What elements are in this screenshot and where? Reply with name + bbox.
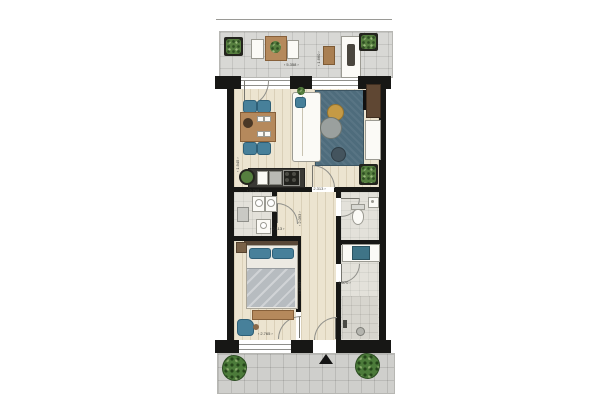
- sofa-pillow: [295, 97, 306, 108]
- wall-toilet-left-bottom: [336, 216, 341, 240]
- plant-icon: [297, 87, 305, 95]
- bed-pillow: [249, 248, 271, 259]
- burner: [285, 178, 289, 182]
- tv-screen: [363, 90, 366, 110]
- balcony-chair-left: [251, 39, 264, 59]
- bottom-wall-left: [215, 340, 239, 353]
- basin-drain: [371, 200, 374, 203]
- tv-cabinet: [366, 84, 381, 118]
- dimension-bathroom-width: 1.070: [336, 281, 351, 285]
- wall-bath-left-top: [336, 245, 341, 264]
- dimension-storage-width: 2.113: [270, 227, 284, 231]
- terrace-plant-left: [222, 355, 247, 381]
- cutting-board: [257, 171, 268, 185]
- kitchen-plant: [239, 169, 255, 185]
- burner: [292, 178, 296, 182]
- burner: [285, 172, 289, 176]
- plant-icon: [361, 35, 376, 49]
- dining-chair: [243, 142, 257, 155]
- dimension-storage-depth: 2.093: [298, 211, 302, 226]
- coffee-table-gray: [320, 117, 342, 139]
- plant-icon: [226, 39, 241, 54]
- shower-head-icon: [343, 320, 347, 328]
- burner: [292, 172, 296, 176]
- shower-drain: [356, 327, 365, 336]
- bedroom-side-table: [253, 324, 259, 330]
- balcony-side-table: [323, 46, 335, 65]
- roof-edge-line: [216, 19, 392, 20]
- bedroom-window: [239, 344, 291, 350]
- table-centerpiece: [243, 118, 253, 128]
- plant-icon: [361, 166, 376, 183]
- dimension-bedroom-length: 4.013: [298, 279, 302, 294]
- bedroom-chair: [237, 319, 254, 336]
- plant-icon: [270, 41, 281, 53]
- floor-plan: 5.358 1.660 1.945 2.765 2.313 2.113 2.09…: [0, 0, 610, 408]
- balcony-chair-right: [287, 40, 299, 59]
- dryer-drum: [267, 199, 275, 207]
- nightstand: [236, 242, 247, 253]
- dimension-balcony-width: 5.358: [284, 63, 299, 67]
- terrace-plant-right: [355, 353, 380, 379]
- pouf: [331, 147, 346, 162]
- table-plate: [257, 131, 264, 137]
- entrance-arrow-icon: [319, 354, 333, 364]
- bed-pillow: [272, 248, 294, 259]
- bed-blanket: [247, 268, 295, 307]
- toilet-bowl: [352, 209, 364, 225]
- dimension-kitchen-width: 2.765: [247, 189, 262, 193]
- bottom-wall-middle: [291, 340, 313, 353]
- outer-wall-left: [227, 76, 234, 353]
- dimension-living-side: 1.945: [236, 157, 240, 172]
- dimension-hall-top-width: 2.313: [311, 187, 326, 191]
- table-plate: [264, 131, 271, 137]
- dimension-bedroom-width: 2.765: [258, 332, 273, 336]
- kitchen-sink: [269, 171, 282, 185]
- bed-bench: [252, 310, 294, 320]
- sideboard: [365, 120, 381, 160]
- water-heater: [237, 207, 249, 222]
- table-plate: [264, 116, 271, 122]
- bathroom-sink: [352, 246, 370, 260]
- bottom-wall-right: [336, 340, 391, 353]
- boiler-dial: [260, 222, 267, 229]
- lounge-cushion: [347, 44, 355, 66]
- dimension-balcony-depth: 1.660: [317, 51, 321, 66]
- dining-chair: [257, 142, 271, 155]
- washer-drum: [255, 199, 263, 207]
- table-plate: [257, 116, 264, 122]
- sliding-window: [312, 80, 358, 86]
